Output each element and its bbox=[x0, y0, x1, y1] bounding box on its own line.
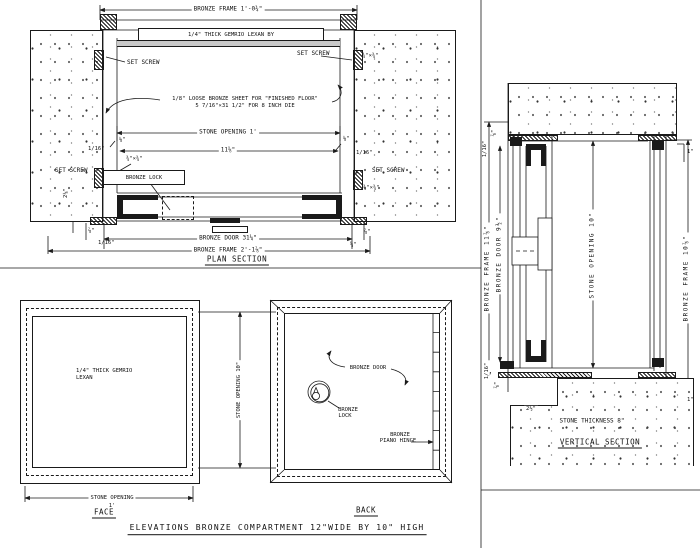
plan-sill-flange bbox=[340, 217, 367, 225]
plan-door-strike bbox=[210, 218, 240, 223]
set-screw-label: SET SCREW bbox=[297, 51, 330, 58]
vsec-top-stone bbox=[508, 83, 677, 135]
seven-eighth-dim: ⅞" bbox=[494, 380, 500, 391]
lug-dim-label: ¾"×¾" bbox=[126, 156, 143, 162]
face-lexan-note-line1: 1/4" THICK GEMRIO bbox=[76, 368, 132, 374]
vsec-ledge-dim: 2½" bbox=[524, 406, 538, 412]
plan-lock-dashed-outline bbox=[162, 196, 194, 220]
one-inch-dim: 1" bbox=[687, 397, 694, 403]
seven-eighth-dim: ⅞" bbox=[88, 228, 95, 234]
one-inch-dim: 1" bbox=[687, 149, 694, 155]
elevation-height-dim: STONE OPENING 10" bbox=[236, 360, 242, 420]
vsec-frame-bit bbox=[500, 361, 514, 369]
plan-side-dim: 2⅛" bbox=[63, 188, 69, 198]
face-lexan-note-line2: LEXAN bbox=[76, 375, 93, 381]
back-inner-frame bbox=[284, 313, 440, 470]
sheet-title: ELEVATIONS BRONZE COMPARTMENT 12"WIDE BY… bbox=[128, 523, 427, 535]
plan-frame-anchor bbox=[100, 14, 117, 30]
plan-door-dim: BRONZE DOOR 31¼" bbox=[197, 236, 259, 243]
vsec-frame-bit bbox=[652, 141, 664, 150]
back-lock-label-line2: LOCK bbox=[338, 413, 351, 419]
plan-frame-bottom-dim: BRONZE FRAME 2'-1⅞" bbox=[192, 248, 265, 255]
face-inner-frame bbox=[32, 316, 187, 468]
plan-lexan-note-box: 1/4" THICK GEMRIO LEXAN BY bbox=[138, 28, 324, 41]
vertical-section-title: VERTICAL SECTION bbox=[558, 438, 642, 449]
back-door-label: BRONZE DOOR bbox=[350, 365, 386, 371]
plan-frame-anchor bbox=[340, 14, 357, 30]
set-screw-label: SET SCREW bbox=[55, 168, 88, 175]
sixteenth-dim: 1/16" bbox=[88, 146, 105, 152]
sheet-note-line1: 1/8" LOOSE BRONZE SHEET FOR "FINISHED FL… bbox=[172, 96, 318, 102]
seven-eighth-dim: ⅞" bbox=[491, 128, 497, 139]
lug-dim-label: ¾"×¾" bbox=[362, 53, 379, 59]
sixteenth-dim: 1/16" bbox=[482, 139, 488, 160]
vsec-frame-right-dim: BRONZE FRAME 10⅞" bbox=[684, 233, 691, 324]
sheet-note-line2: 5 7/16"×31 1/2" FOR 8 INCH DIE bbox=[195, 103, 294, 109]
face-opening-dim-line1: STONE OPENING bbox=[88, 495, 135, 501]
sixteenth-dim: 1/16" bbox=[356, 150, 373, 156]
face-title: FACE bbox=[92, 508, 116, 519]
lock-label-text: BRONZE LOCK bbox=[126, 175, 162, 181]
plan-frame-top-dim: BRONZE FRAME 1'-0¾" bbox=[192, 7, 265, 14]
plan-lexan-sheet bbox=[117, 40, 340, 47]
five-eighth-dim: ⅝" bbox=[350, 242, 357, 248]
plan-section-title: PLAN SECTION bbox=[205, 255, 269, 266]
vsec-frame-left-dim: BRONZE FRAME 11⅞" bbox=[485, 223, 492, 314]
plan-setscrew-lug bbox=[353, 170, 363, 190]
sixteenth-dim: 1/16" bbox=[484, 361, 490, 382]
vsec-frame-bit bbox=[510, 137, 522, 146]
back-title: BACK bbox=[354, 506, 378, 517]
plan-stone-opening-dim: STONE OPENING 1' bbox=[197, 130, 259, 137]
eighth-dim: ⅛" bbox=[343, 136, 350, 142]
plan-setscrew-lug bbox=[94, 50, 104, 70]
plan-sill-flange bbox=[90, 217, 117, 225]
vsec-frame-bit bbox=[652, 358, 664, 367]
set-screw-label: SET SCREW bbox=[372, 168, 405, 175]
plan-inner-dim: 11⅝" bbox=[219, 148, 237, 155]
plan-lock-label-box: BRONZE LOCK bbox=[103, 170, 185, 185]
vsec-frame-flange bbox=[638, 372, 676, 378]
sixteenth-dim: 1/16" bbox=[98, 240, 115, 246]
lug-dim-label: ¾"×¾" bbox=[363, 185, 380, 191]
plan-strike-plate bbox=[212, 226, 248, 233]
lexan-note-text: 1/4" THICK GEMRIO LEXAN BY bbox=[188, 32, 274, 38]
vsec-stone-opening-dim: STONE OPENING 10" bbox=[590, 210, 597, 301]
drawing-sheet: 1/4" THICK GEMRIO LEXAN BY BRONZE LOCK B… bbox=[0, 0, 700, 548]
vsec-stone-thickness: STONE THICKNESS 8" bbox=[557, 419, 626, 426]
back-hinge-label-line2: PIANO HINGE bbox=[380, 438, 416, 444]
vsec-frame-flange bbox=[498, 372, 592, 378]
seven-eighth-dim: ⅞" bbox=[364, 229, 371, 235]
vsec-door-dim: BRONZE DOOR 9½" bbox=[497, 214, 504, 295]
vsec-stone-notch bbox=[510, 378, 558, 406]
eighth-dim: ⅛" bbox=[119, 137, 126, 143]
set-screw-label: SET SCREW bbox=[127, 60, 160, 67]
